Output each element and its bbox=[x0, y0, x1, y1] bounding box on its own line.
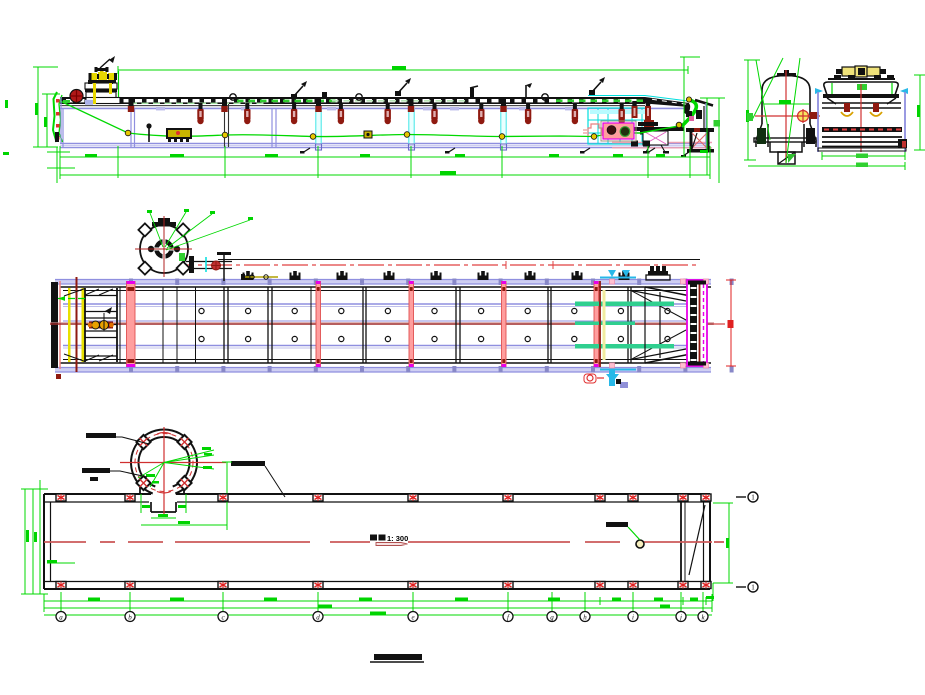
svg-text:1: 300: 1: 300 bbox=[387, 534, 408, 543]
svg-text:d: d bbox=[316, 614, 320, 622]
svg-text:h: h bbox=[583, 614, 587, 622]
svg-text:j: j bbox=[679, 614, 682, 622]
svg-text:b: b bbox=[128, 614, 132, 622]
svg-text:1: 1 bbox=[751, 583, 755, 592]
svg-text:g: g bbox=[550, 614, 554, 622]
svg-text:e: e bbox=[411, 614, 414, 622]
svg-text:i: i bbox=[632, 614, 634, 622]
svg-text:a: a bbox=[59, 614, 63, 622]
svg-text:1: 1 bbox=[751, 493, 755, 502]
